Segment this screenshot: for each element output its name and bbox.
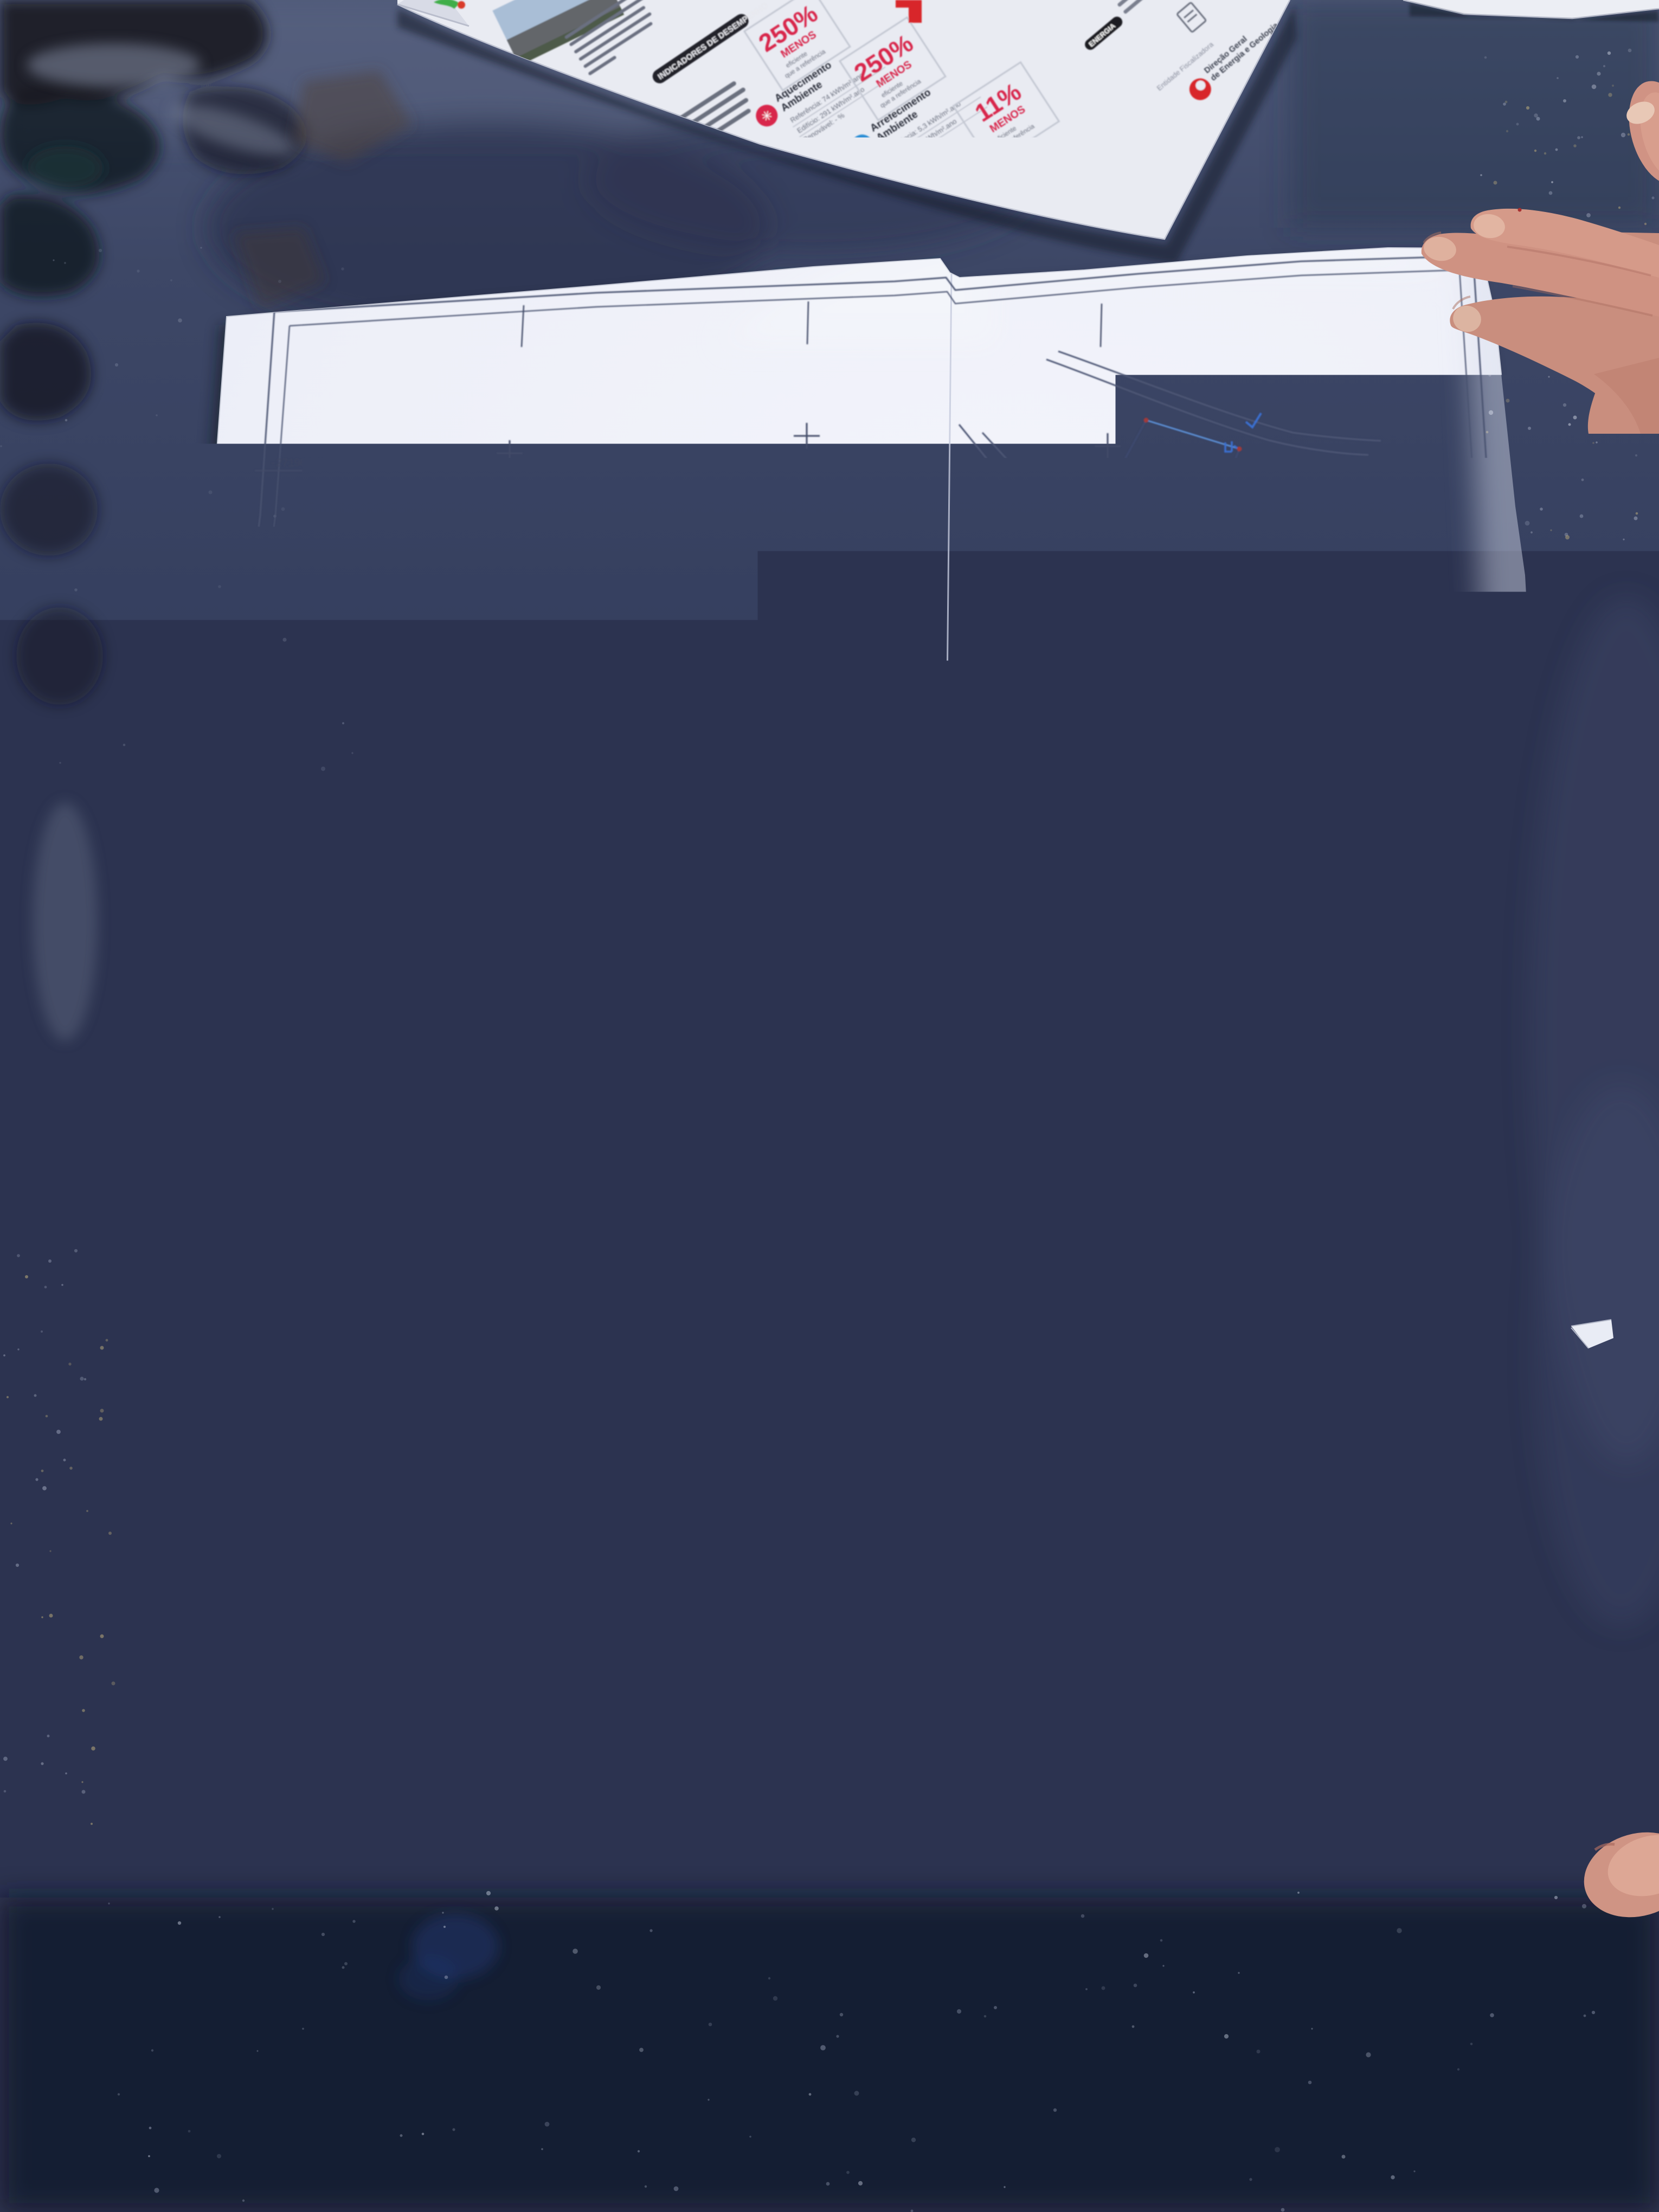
svg-text:-271950mP: -271950mP [233, 728, 288, 740]
svg-text:Área anexos: Área anexos [1351, 1441, 1409, 1453]
svg-text:172: 172 [1504, 1426, 1522, 1438]
svg-text:ETRS 89: ETRS 89 [1509, 1812, 1555, 1827]
svg-text:9462: 9462 [1500, 1459, 1523, 1471]
svg-text:Área total do Prédio: Área total do Prédio [1351, 1457, 1442, 1470]
svg-text:Georef: Georef [1375, 1540, 1445, 1566]
svg-text:Telm : 962918474: Telm : 962918474 [1340, 1634, 1443, 1649]
svg-text:-271900mP: -271900mP [269, 458, 325, 470]
svg-text:-272100mP: -272100mP [132, 1702, 188, 1714]
svg-text:fhantao@gmail.com: fhantao@gmail.com [1339, 1650, 1450, 1666]
svg-text:Local: Local [1311, 1740, 1344, 1757]
svg-text:12350mM: 12350mM [757, 1803, 769, 1846]
svg-text:-272000mP: -272000mP [201, 1017, 256, 1030]
svg-text:Sist. Coord.: Sist. Coord. [1491, 1778, 1553, 1793]
svg-text:1/500: 1/500 [1431, 1809, 1461, 1823]
svg-text:12300mM: 12300mM [394, 1794, 406, 1837]
svg-text:Desc.: Desc. [1312, 1682, 1345, 1698]
svg-text:-272050mP: -272050mP [164, 1343, 220, 1356]
svg-text:Engenharia Topografica Lda: Engenharia Topografica Lda [1332, 1567, 1525, 1585]
svg-text:Escala: Escala [1413, 1778, 1450, 1793]
svg-text:Francisco José Faisca Rosa: Francisco José Faisca Rosa [1369, 1714, 1525, 1730]
svg-text:Corcitos - Loulé: Corcitos - Loulé [1362, 1745, 1459, 1761]
svg-text:12400mM: 12400mM [1126, 1814, 1138, 1856]
svg-text:N: N [1360, 522, 1374, 542]
svg-text:Área coberta: Área coberta [1351, 1424, 1411, 1437]
svg-text:R. Marçal Aboim Lote 4 3º esq: R. Marçal Aboim Lote 4 3º esq [1338, 1594, 1515, 1610]
svg-text:Artigo nº 2653: Artigo nº 2653 [1367, 1404, 1451, 1419]
svg-text:8100-705 Loulé: 8100-705 Loulé [1338, 1609, 1429, 1624]
svg-text:27/06/2019: 27/06/2019 [1312, 1802, 1377, 1817]
svg-text:Lev. Topográfico: Lev. Topográfico [1365, 1685, 1465, 1701]
svg-text:PT TM 06: PT TM 06 [1506, 1796, 1559, 1810]
svg-text:Cliente: Cliente [1309, 1710, 1350, 1726]
svg-text:Data: Data [1307, 1773, 1334, 1788]
svg-text:31: 31 [1504, 1443, 1516, 1455]
